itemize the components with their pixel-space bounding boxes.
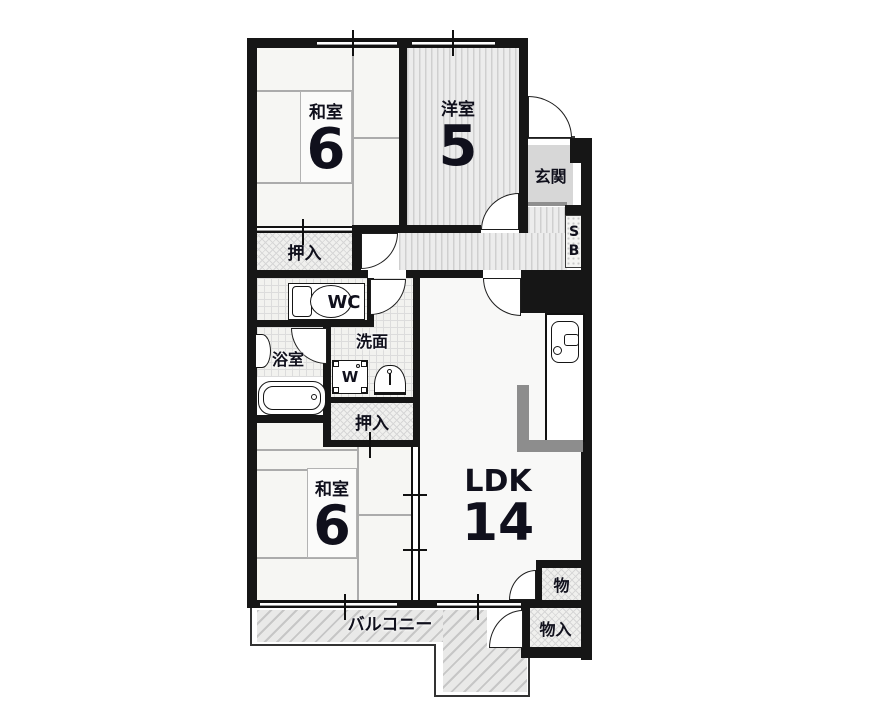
door-arc-entrance	[528, 96, 572, 138]
room-oshiire-top: 押入	[257, 233, 352, 270]
hallway-floor	[399, 233, 567, 270]
floorplan: 押入 押入 S B 物 物入 バルコニー	[0, 0, 883, 724]
balcony-outline	[250, 644, 436, 646]
kitchen-faucet	[564, 334, 579, 346]
window	[437, 601, 521, 608]
tatami-line	[357, 447, 359, 600]
shoebox-letter-s: S	[569, 223, 579, 241]
wc-label: WC	[327, 292, 360, 313]
wall	[521, 647, 592, 658]
balcony-outline	[528, 655, 530, 695]
wall	[407, 225, 481, 233]
kitchen-counter-gray-v	[517, 385, 529, 443]
washer-corner	[333, 361, 339, 367]
tatami-line	[353, 137, 399, 139]
oshiire-mid-label: 押入	[355, 409, 389, 434]
room-oshiire-mid: 押入	[331, 403, 413, 440]
ldk-label: LDK 14	[443, 462, 553, 554]
genkan-label-wrap: 玄関	[528, 145, 573, 205]
wall	[519, 38, 528, 233]
wall	[247, 270, 368, 278]
washer-dial	[356, 364, 360, 368]
room-mono: 物	[542, 568, 581, 600]
wall-tick	[403, 494, 427, 496]
window	[260, 601, 397, 608]
youshitsu-label: 洋室 5	[428, 88, 488, 180]
washer-corner	[361, 387, 367, 393]
tatami-line	[358, 514, 411, 516]
genkan-label: 玄関	[534, 163, 566, 187]
hallway-floor-genkan-leg	[528, 207, 567, 233]
vanity-faucet	[389, 373, 391, 385]
wall	[565, 205, 583, 215]
room-monoire: 物入	[530, 608, 581, 647]
toilet-tank-icon	[292, 286, 312, 317]
washitsu-top-label-box: 和室 6	[300, 91, 352, 183]
wall	[570, 138, 592, 163]
bathtub-drain	[311, 394, 317, 400]
senmen-label-wrap: 洗面	[346, 330, 398, 350]
wall-tick	[369, 432, 371, 458]
vanity-faucet-knob	[387, 369, 392, 374]
balcony-outline	[434, 644, 436, 697]
wall-tick	[302, 219, 304, 245]
wall	[247, 38, 257, 608]
tatami-line	[257, 469, 308, 471]
balcony-label-wrap: バルコニー	[335, 610, 445, 634]
wall-tick	[403, 549, 427, 551]
wall	[536, 560, 542, 600]
ldk-size: 14	[462, 497, 534, 549]
wall	[331, 397, 420, 403]
balcony-outline	[434, 695, 530, 697]
wall	[257, 320, 374, 327]
wall	[536, 560, 583, 568]
balcony-outline	[250, 608, 252, 646]
wall-tick	[352, 30, 354, 56]
washitsu-bottom-label-box: 和室 6	[307, 468, 357, 558]
monoire-label: 物入	[539, 616, 571, 640]
washer-corner	[361, 361, 367, 367]
kitchen-counter-gray-h	[517, 440, 583, 452]
wall	[399, 48, 407, 233]
shoebox-letter-b: B	[569, 242, 580, 260]
senmen-label: 洗面	[356, 328, 388, 352]
washer-corner	[333, 387, 339, 393]
wall-tick	[452, 30, 454, 56]
sliding-partition	[411, 447, 420, 600]
washitsu-bottom-size: 6	[313, 500, 351, 551]
oshiire-top-sliding-door	[257, 226, 352, 233]
youshitsu-size: 5	[439, 120, 478, 173]
wall-tick	[477, 594, 479, 620]
oshiire-top-label: 押入	[288, 239, 322, 264]
window	[317, 40, 397, 47]
wall	[406, 270, 483, 278]
washer-label: W	[342, 368, 359, 386]
wall	[352, 226, 361, 270]
mono-label: 物	[553, 572, 569, 596]
wall-tick	[344, 594, 346, 620]
balcony-label: バルコニー	[348, 610, 433, 635]
wc-label-wrap: WC	[322, 288, 366, 316]
tatami-line	[257, 449, 358, 451]
yokushitsu-label-wrap: 浴室	[263, 348, 313, 368]
wall	[413, 278, 420, 447]
wall	[331, 440, 420, 447]
washitsu-top-size: 6	[307, 123, 346, 176]
yokushitsu-label: 浴室	[272, 346, 304, 370]
wall	[247, 415, 331, 423]
kitchen-knob	[553, 346, 562, 355]
